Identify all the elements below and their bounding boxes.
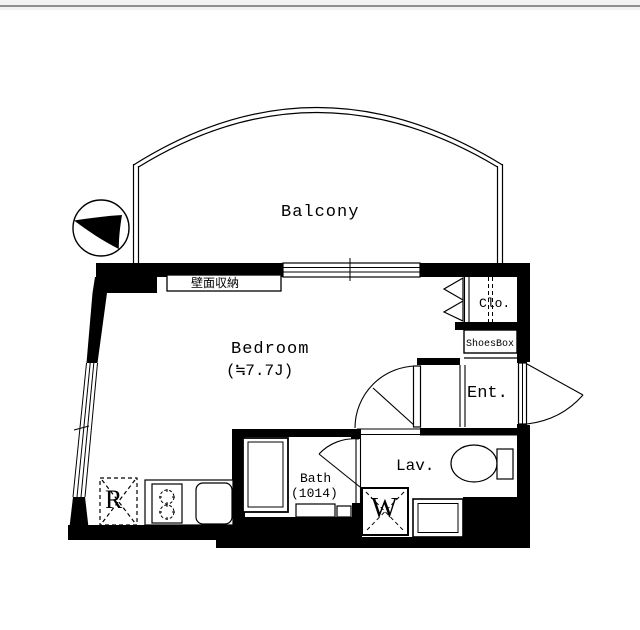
balcony-window [283, 258, 420, 281]
wall-storage-label: 壁面収納 [191, 277, 239, 289]
kitchen-counter [145, 480, 233, 525]
bedroom-size-label: (≒7.7J) [226, 363, 293, 379]
kitchen-sink [196, 483, 232, 524]
balcony-label: Balcony [281, 204, 359, 221]
entrance-label: Ent. [467, 385, 508, 402]
closet-folding-door [444, 278, 463, 321]
shoesbox-label: ShoesBox [466, 340, 514, 350]
floorplan-page: Balcony Bedroom (≒7.7J) 壁面収納 Clo. ShoesB… [0, 0, 640, 630]
bath-label: Bath [300, 472, 331, 485]
balcony-outline [134, 108, 503, 265]
bedroom-label: Bedroom [231, 341, 309, 358]
vanity-unit [413, 499, 463, 537]
bathtub [243, 438, 288, 512]
compass-icon [73, 200, 129, 256]
entrance-north-wall [417, 358, 460, 365]
entrance-step-line [460, 365, 465, 427]
bath-sink [296, 504, 351, 517]
washer-label: W [371, 495, 397, 523]
refrigerator-label: R [105, 487, 122, 513]
bath-size-label: (1014) [291, 487, 338, 500]
bedroom-door [355, 366, 421, 428]
front-door [517, 354, 583, 435]
west-window [73, 363, 98, 497]
closet-partition [465, 277, 470, 322]
closet-label: Clo. [479, 297, 510, 310]
closet-bottom-wall [455, 322, 530, 330]
toilet [451, 445, 513, 482]
lavatory-label: Lav. [396, 458, 434, 474]
lavatory-north-wall [357, 428, 517, 436]
floorplan-drawing [0, 0, 640, 630]
